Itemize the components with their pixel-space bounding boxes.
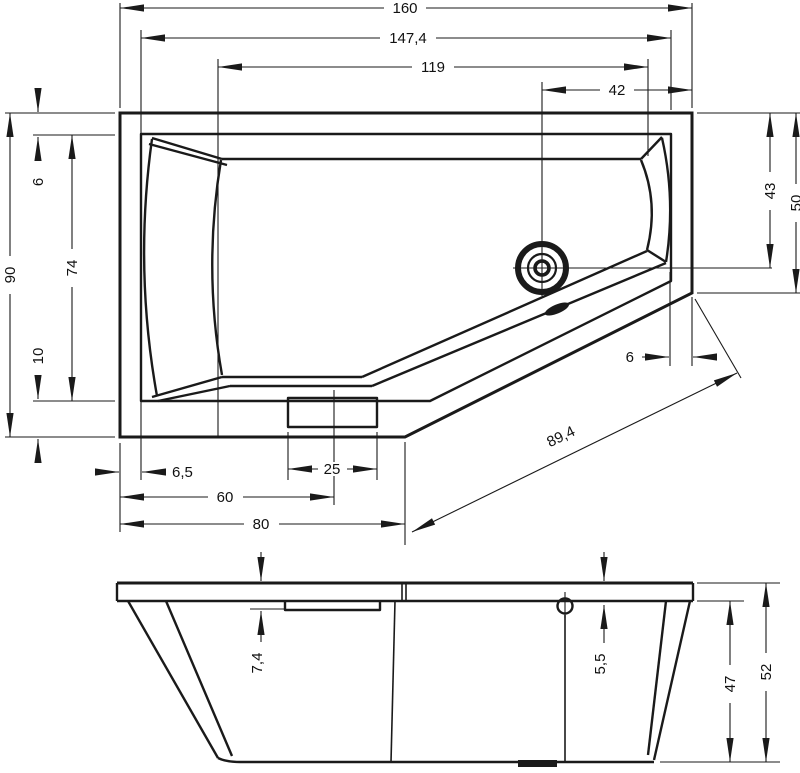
foot-pad — [518, 760, 557, 767]
overflow-marker — [543, 300, 570, 318]
plan-extension-lines — [5, 3, 800, 545]
dim-overall-width: 160 — [120, 0, 692, 17]
dim-label-42: 42 — [609, 82, 626, 99]
dim-front-width: 80 — [120, 516, 405, 533]
side-overflow-fitting — [558, 592, 573, 618]
plan-view: 160 147,4 119 42 90 6 — [2, 0, 800, 545]
dim-left-offset: 6,5 — [96, 464, 193, 481]
dim-overall-height: 52 — [758, 583, 775, 762]
technical-drawing: 160 147,4 119 42 90 6 — [0, 0, 800, 773]
dim-label-7-4: 7,4 — [249, 653, 266, 674]
dim-label-52: 52 — [758, 664, 775, 681]
dim-overflow-drop: 5,5 — [592, 552, 609, 674]
dim-diag-length: 89,4 — [412, 373, 737, 532]
dim-shell-height: 47 — [722, 601, 739, 762]
dim-label-6-top: 6 — [30, 178, 47, 186]
tub-outer-rim — [120, 113, 692, 437]
dim-label-74: 74 — [64, 260, 81, 277]
dim-label-6-5: 6,5 — [172, 464, 193, 481]
dim-headrest-center: 60 — [120, 489, 334, 506]
drawing-canvas: 160 147,4 119 42 90 6 — [0, 0, 800, 773]
dim-label-160: 160 — [392, 0, 417, 17]
dim-label-25: 25 — [324, 461, 341, 478]
dim-label-47: 47 — [722, 676, 739, 693]
dim-overall-depth: 90 — [2, 113, 19, 437]
basin-outline — [144, 137, 670, 401]
side-view: 7,4 5,5 47 52 — [117, 552, 780, 767]
dim-basin-depth: 74 — [64, 135, 81, 401]
dim-label-80: 80 — [253, 516, 270, 533]
dim-drain-depth: 43 — [762, 113, 779, 268]
dim-label-5-5: 5,5 — [592, 654, 609, 675]
dim-corner-depth: 50 — [788, 113, 800, 293]
dim-basin-width: 119 — [218, 59, 648, 76]
dim-rim-top-width: 6 — [30, 88, 47, 186]
dim-label-60: 60 — [217, 489, 234, 506]
dim-label-10: 10 — [30, 348, 47, 365]
dim-label-43: 43 — [762, 183, 779, 200]
dim-label-50: 50 — [788, 195, 800, 212]
side-headrest-ledge — [285, 601, 380, 610]
dim-label-6-diag: 6 — [626, 349, 634, 366]
dim-inner-width: 147,4 — [141, 30, 671, 47]
dim-rim-bottom-width: 10 — [30, 348, 47, 462]
dim-label-90: 90 — [2, 267, 19, 284]
dim-headrest-width: 25 — [288, 461, 377, 478]
dim-drain-offset: 42 — [542, 82, 692, 99]
dim-label-89-4: 89,4 — [544, 423, 578, 451]
dim-label-147-4: 147,4 — [389, 30, 427, 47]
dim-headrest-drop: 7,4 — [249, 552, 266, 673]
dim-label-119: 119 — [421, 59, 445, 76]
headrest — [288, 398, 377, 427]
